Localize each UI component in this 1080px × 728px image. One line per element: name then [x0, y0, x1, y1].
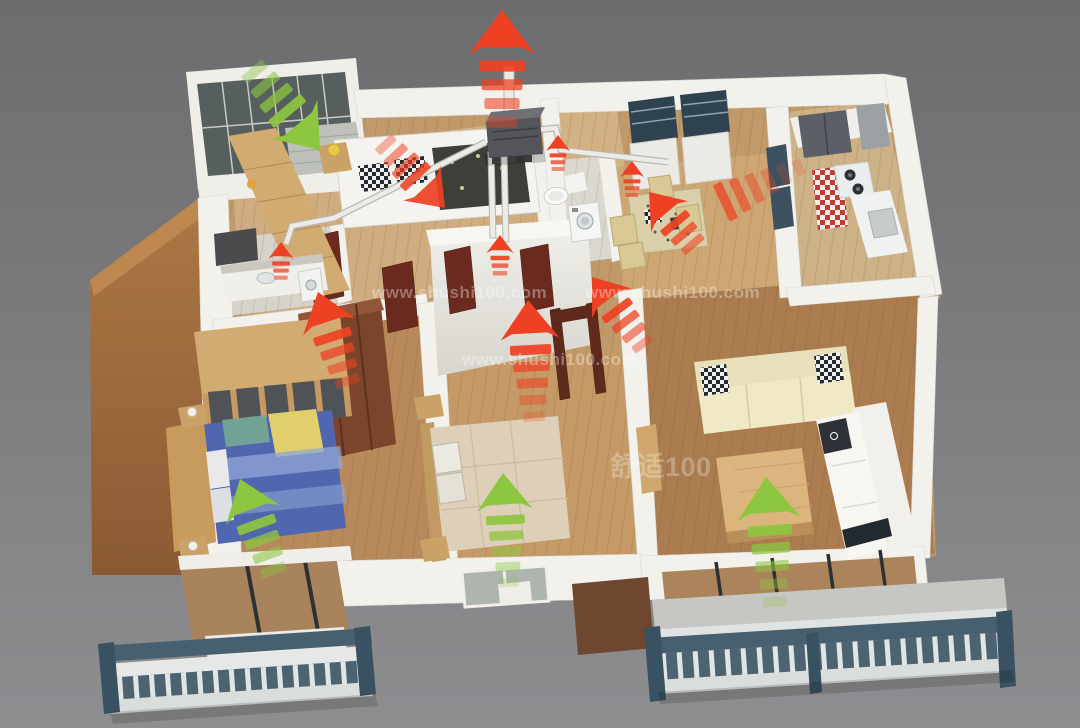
- unit-foot-1: [492, 157, 500, 164]
- arrow-dash: [491, 256, 510, 261]
- arrow-dash: [763, 596, 787, 608]
- plaid-teal: [222, 415, 270, 447]
- arrow-dash: [493, 271, 507, 276]
- arrow-dash: [487, 117, 517, 128]
- master-pillow-1: [206, 449, 230, 489]
- door-hall-2: [444, 246, 476, 314]
- chair-1: [610, 214, 638, 246]
- lamp-bedroom1: [328, 144, 340, 156]
- arrow-dash: [523, 411, 545, 422]
- arrow-dash: [274, 276, 287, 280]
- duct-down-2: [501, 152, 509, 242]
- sofa-pillow-check-1: [700, 364, 730, 396]
- washer-left-door: [306, 280, 316, 290]
- sink-basin-left: [257, 273, 275, 284]
- unit-foot-2: [508, 156, 516, 163]
- watermark-logo: 舒适100: [610, 451, 712, 482]
- bed2-pillow-1: [432, 442, 462, 474]
- watermark-url: www.shushi100.com: [461, 350, 637, 369]
- bed1-pillow-1: [358, 162, 392, 192]
- arrow-dash: [520, 394, 547, 405]
- arrow-dash: [489, 530, 523, 541]
- washing-machine-panel: [572, 208, 578, 212]
- arrow-dash: [495, 561, 520, 571]
- arrow-dash: [273, 268, 289, 272]
- lamp-master-2: [189, 542, 198, 551]
- brown-wall-piece: [572, 577, 654, 655]
- washing-machine-drum: [581, 217, 589, 225]
- entry-transom-left: [628, 96, 678, 144]
- watermark-url: www.shushi100.com: [371, 283, 547, 302]
- arrow-dash: [482, 79, 523, 90]
- arrow-dash: [550, 153, 567, 157]
- sofa-white-pillow: [818, 418, 852, 454]
- burner-2-center: [856, 187, 860, 191]
- arrow-dash: [492, 263, 509, 268]
- arrow-dash: [484, 98, 519, 109]
- arrow-dash: [492, 546, 522, 557]
- watermark-url: www.shushi100.com: [584, 283, 760, 302]
- lamp-cabinet: [247, 179, 257, 189]
- arrow-dash: [625, 186, 640, 190]
- arrow-dash: [626, 193, 639, 197]
- bed2-pillow-2: [436, 472, 466, 504]
- arrow-dash: [551, 160, 566, 164]
- arrow-dash: [272, 261, 290, 265]
- chair-2: [618, 242, 646, 270]
- burner-1-center: [848, 173, 852, 177]
- arrow-dash: [479, 61, 525, 72]
- scene-svg: www.shushi100.comwww.shushi100.comwww.sh…: [0, 0, 1080, 728]
- sink-basin: [868, 208, 898, 238]
- kitchen-tall-cabinet: [856, 103, 890, 150]
- arrow-dash: [759, 578, 788, 590]
- lamp-master-1: [188, 408, 197, 417]
- entry-door-leaf-right: [682, 132, 732, 184]
- arrow-dash: [498, 577, 519, 587]
- arrow-dash: [552, 167, 565, 171]
- unit-foot-3: [524, 155, 532, 162]
- arrow-dash: [516, 377, 548, 388]
- arrow-dash: [624, 179, 641, 183]
- bed2-nightstand-2: [420, 536, 450, 562]
- bed2-nightstand-1: [414, 394, 444, 420]
- ventilation-floorplan-render: www.shushi100.comwww.shushi100.comwww.sh…: [0, 0, 1080, 728]
- bathroom-left-mirror: [214, 228, 258, 266]
- heat-recovery-unit: [484, 107, 546, 166]
- sofa-pillow-check-2: [814, 352, 844, 384]
